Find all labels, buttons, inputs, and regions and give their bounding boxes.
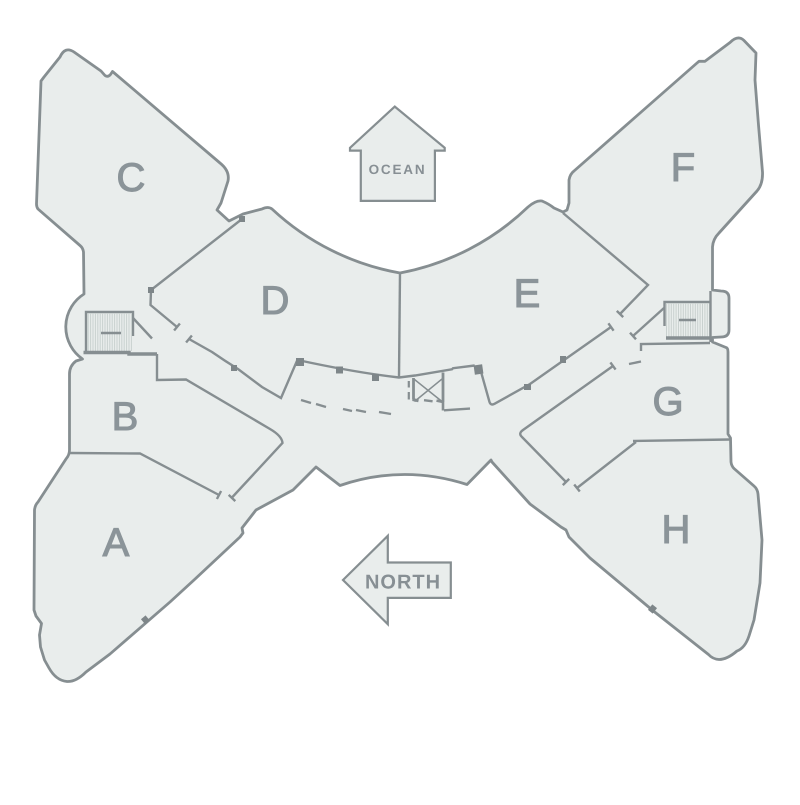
- svg-text:E: E: [514, 272, 541, 316]
- svg-text:OCEAN: OCEAN: [369, 162, 427, 177]
- svg-text:D: D: [261, 279, 290, 323]
- svg-text:H: H: [662, 508, 691, 552]
- svg-text:A: A: [103, 521, 130, 565]
- svg-text:F: F: [671, 146, 695, 190]
- svg-text:NORTH: NORTH: [365, 572, 441, 594]
- svg-text:C: C: [117, 156, 146, 200]
- svg-text:G: G: [652, 380, 683, 424]
- svg-text:B: B: [112, 395, 139, 439]
